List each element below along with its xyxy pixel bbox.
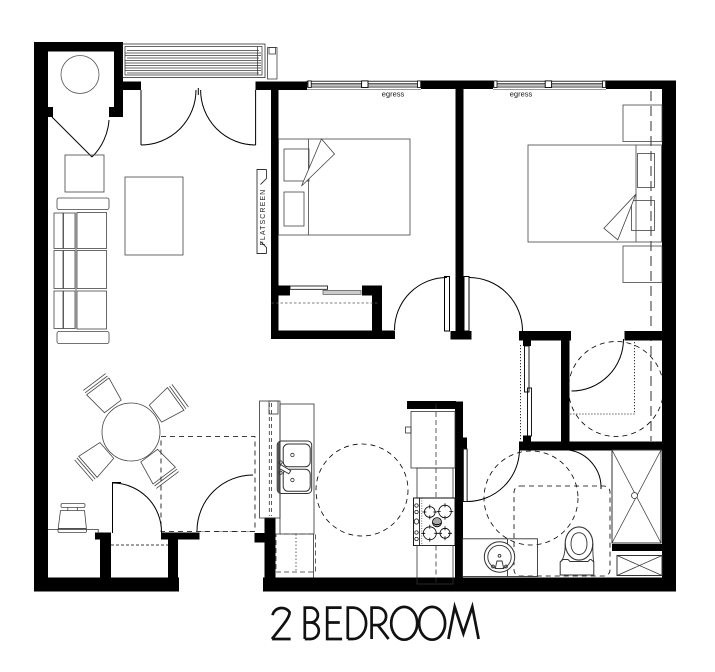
svg-text:egress: egress [382, 90, 405, 99]
svg-text:egress: egress [510, 90, 533, 99]
svg-text:FLATSCREEN: FLATSCREEN [260, 189, 267, 246]
